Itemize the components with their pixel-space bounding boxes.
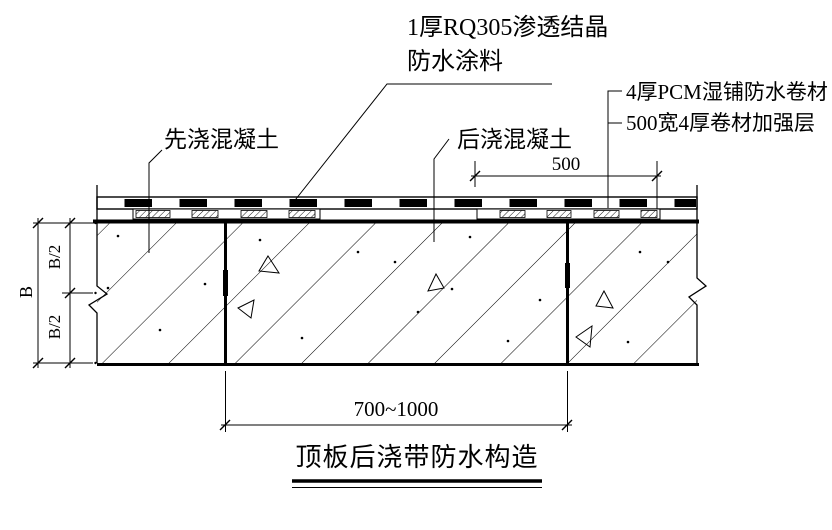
reinforcement-strips [133,209,660,219]
dimension-label-b2-lower: B/2 [40,305,70,349]
first-pour-concrete-callout: 先浇混凝土 [164,127,279,153]
dimension-label-b: B [10,274,42,310]
coating-callout-line1: 1厚RQ305渗透结晶 [407,15,608,43]
dimension-label-b2-upper: B/2 [40,235,70,279]
drawing-canvas: 1厚RQ305渗透结晶 防水涂料 4厚PCM湿铺防水卷材 500宽4厚卷材加强层… [0,0,832,530]
dimension-label-700-1000: 700~1000 [316,397,476,421]
title-underline [292,481,542,488]
drawing-title: 顶板后浇带防水构造 [287,443,547,473]
membrane-callout: 4厚PCM湿铺防水卷材 [626,80,828,104]
concrete-slab [97,223,697,364]
membrane-band [97,197,697,209]
post-pour-concrete-callout: 后浇混凝土 [457,127,572,153]
coating-callout-line2: 防水涂料 [407,49,503,77]
dimension-label-500: 500 [536,154,596,176]
reinforcement-callout: 500宽4厚卷材加强层 [626,111,815,135]
